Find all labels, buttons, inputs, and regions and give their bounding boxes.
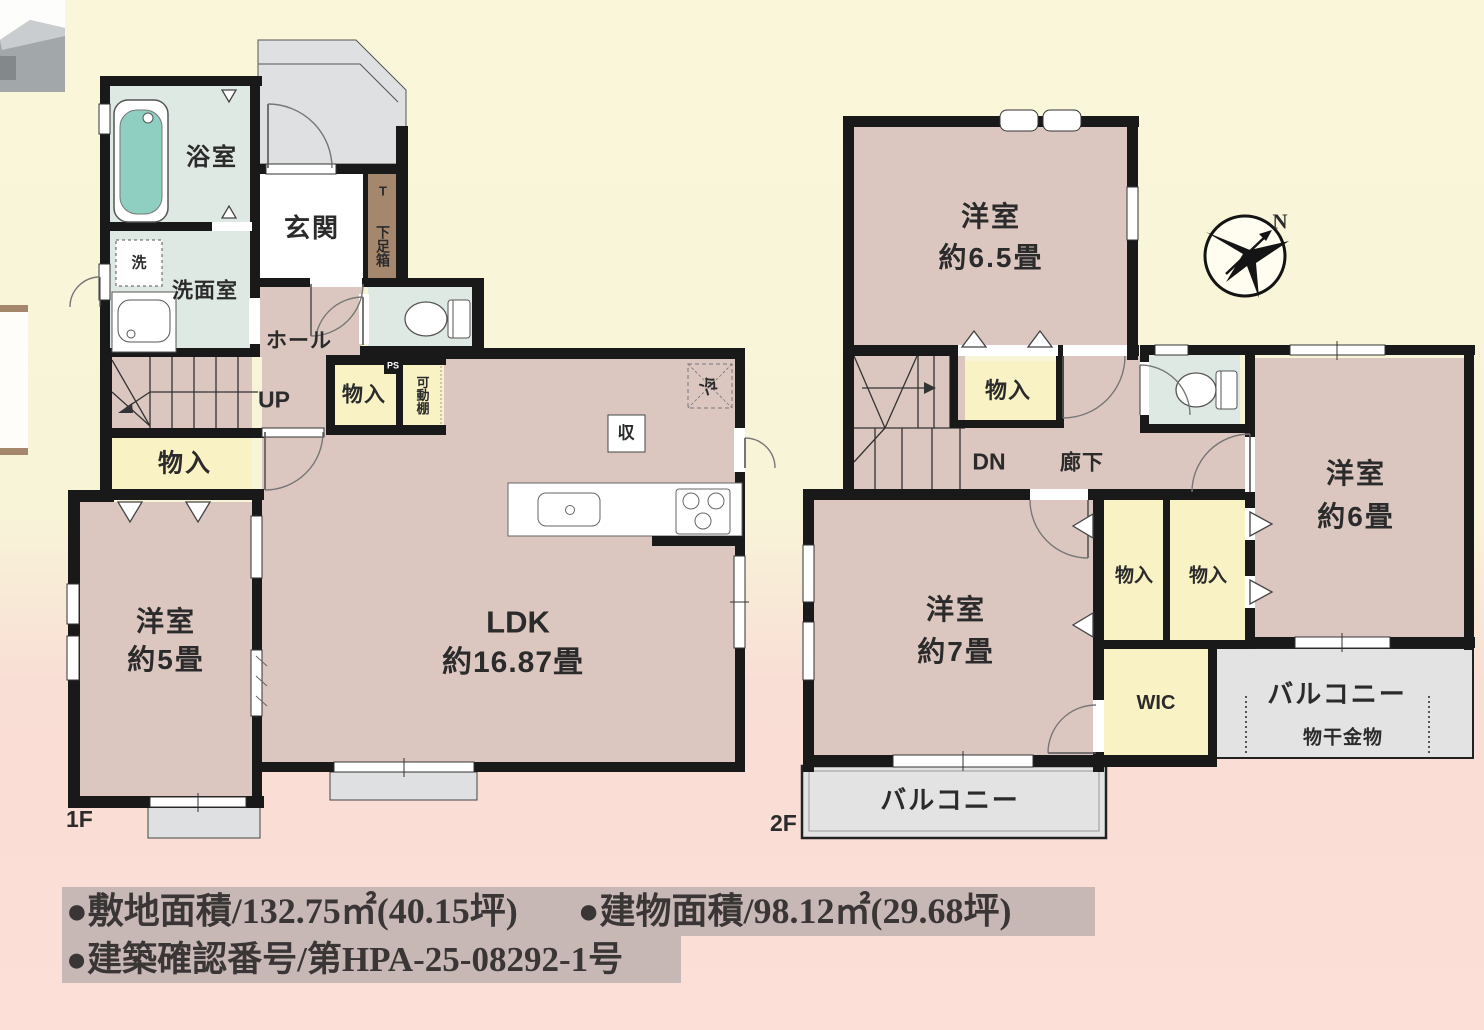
photo-fragment <box>0 0 65 92</box>
closet-hall-label: 物入 <box>342 385 386 406</box>
footer-confirmation-band: ●建築確認番号/第HPA-25-08292-1号 <box>62 936 681 983</box>
floor2-label: 2F <box>770 812 797 835</box>
west-room-7-size: 約7畳 <box>917 638 995 666</box>
room-label-washroom: 洗面室 <box>172 281 238 302</box>
toilet-icon-2f <box>1176 371 1237 409</box>
shoe-cabinet-t-label: T <box>379 185 387 198</box>
confirmation-number-text: ●建築確認番号/第HPA-25-08292-1号 <box>66 936 623 983</box>
toilet-icon-1f <box>405 300 470 338</box>
west-room-65-size: 約6.5畳 <box>939 244 1044 272</box>
bathtub-icon <box>114 100 168 222</box>
corridor-label: 廊下 <box>1060 453 1104 474</box>
hanging-hardware-label: 物干金物 <box>1303 729 1383 748</box>
building-area-text: ●建物面積/98.12㎡(29.68坪) <box>578 887 1012 936</box>
shoe-cabinet-label: 下足箱 <box>376 225 390 267</box>
washer-label: 洗 <box>131 256 146 271</box>
west-room-5-size: 約5畳 <box>127 646 205 674</box>
balcony-right-label: バルコニー <box>1267 681 1406 707</box>
ldk-name: LDK <box>486 607 550 638</box>
movable-shelf-label: 可動棚 <box>416 376 429 415</box>
wic-label: WIC <box>1137 693 1176 713</box>
west-room-7-name: 洋室 <box>926 596 986 624</box>
closet-top-label: 物入 <box>985 380 1031 402</box>
ldk-size: 約16.87畳 <box>442 648 584 678</box>
footer-area-band: ●敷地面積/132.75㎡(40.15坪) ●建物面積/98.12㎡(29.68… <box>62 887 1095 936</box>
closet-b-label: 物入 <box>1189 567 1227 586</box>
west-room-6-name: 洋室 <box>1326 460 1386 488</box>
vanity-sink-icon <box>112 292 176 352</box>
balcony-bottom-label: バルコニー <box>880 787 1019 813</box>
site-area-text: ●敷地面積/132.75㎡(40.15坪) <box>66 887 518 936</box>
closet-stairs-label: 物入 <box>158 452 212 477</box>
west-room-6-size: 約6畳 <box>1317 503 1395 531</box>
room-label-hall: ホール <box>266 331 332 352</box>
floor1-label: 1F <box>66 808 93 831</box>
closet-a-label: 物入 <box>1115 567 1153 586</box>
west-room-5-name: 洋室 <box>136 608 196 636</box>
stairs-up-label: UP <box>258 389 290 412</box>
compass-north-label: N <box>1272 212 1287 233</box>
room-label-entrance: 玄関 <box>284 215 340 241</box>
left-edge-fragment <box>0 305 28 455</box>
storage-label: 収 <box>618 425 635 442</box>
ps-label: PS <box>387 362 399 371</box>
room-label-bath: 浴室 <box>186 146 238 170</box>
west-room-65-name: 洋室 <box>961 203 1021 231</box>
stairs-dn-label: DN <box>972 451 1005 474</box>
floorplan-page: { "floor1": { "label": "1F", "rooms": { … <box>0 0 1484 1030</box>
